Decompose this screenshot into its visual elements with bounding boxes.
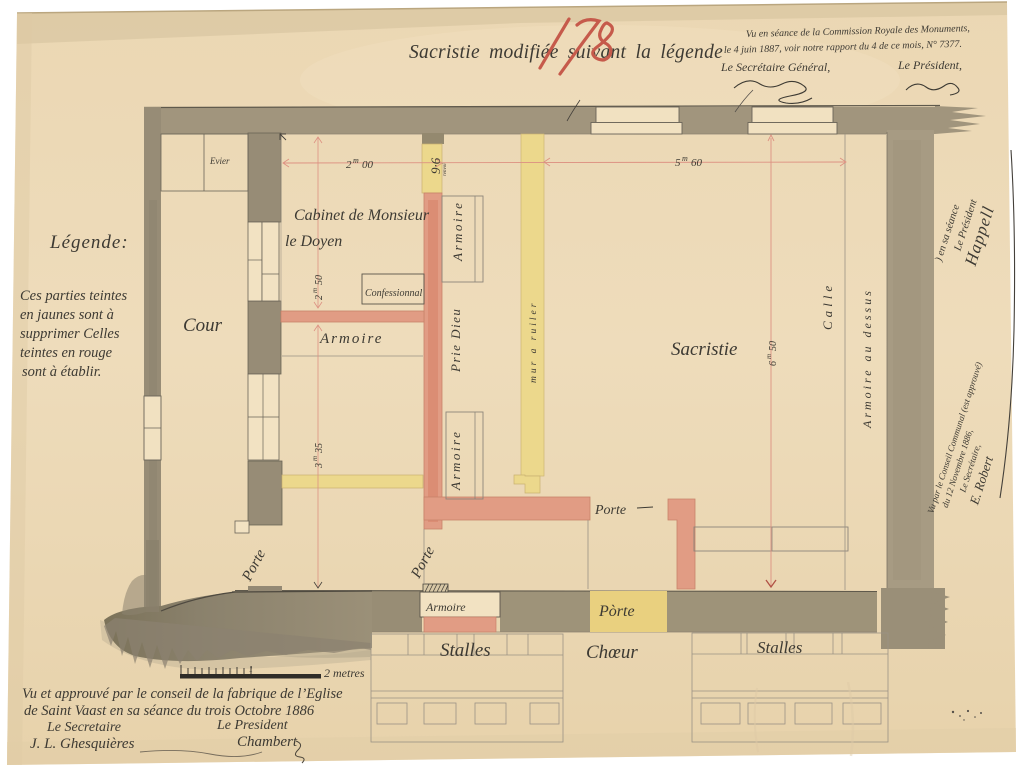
svg-text:50: 50 [768,341,779,351]
svg-text:m: m [311,456,319,461]
svg-text:Stalles: Stalles [757,638,803,657]
svg-text:Le Secrétaire Général,: Le Secrétaire Général, [720,60,830,74]
svg-text:Armoire au dessus: Armoire au dessus [860,288,874,429]
svg-text:Stalles: Stalles [440,640,491,661]
svg-text:m: m [765,354,773,359]
svg-text:9·6: 9·6 [428,157,443,174]
svg-text:m: m [353,156,359,165]
svg-text:m: m [682,154,688,163]
svg-text:Le Secretaire: Le Secretaire [46,720,121,735]
svg-text:m: m [311,288,319,293]
svg-text:Chœur: Chœur [586,642,638,663]
svg-text:Chambert: Chambert [237,734,298,750]
svg-text:5: 5 [675,157,681,169]
svg-text:Le President: Le President [216,718,289,733]
svg-text:Sacristie modifiée suivant la: Sacristie modifiée suivant la légende [409,42,723,63]
svg-text:teintes en rouge: teintes en rouge [20,345,113,361]
svg-text:1: 1 [249,665,253,674]
svg-text:Armoire: Armoire [448,430,463,491]
svg-text:Calle: Calle [820,282,835,330]
svg-text:J. L. Ghesquières: J. L. Ghesquières [30,736,135,752]
svg-text:Porte: Porte [594,503,626,518]
svg-text:mur a ruiler: mur a ruiler [529,301,539,383]
svg-text:00: 00 [362,159,374,171]
svg-text:35: 35 [314,443,325,454]
svg-text:Evier: Evier [209,156,230,166]
svg-text:Vu et approuvé par le conseil: Vu et approuvé par le conseil de la fabr… [22,686,343,702]
svg-text:Pòrte: Pòrte [598,603,635,620]
svg-text:Armoire: Armoire [319,331,383,347]
svg-text:Légende:: Légende: [49,232,129,253]
svg-text:Ces parties teintes: Ces parties teintes [20,288,127,304]
svg-text:Armoire: Armoire [450,201,465,262]
svg-text:renvoi: renvoi [443,163,448,176]
svg-text:Prie Dieu: Prie Dieu [448,308,463,373]
svg-text:Sacristie: Sacristie [671,339,738,360]
svg-text:Cabinet de Monsieur: Cabinet de Monsieur [294,207,430,224]
svg-text:50: 50 [314,275,325,285]
svg-text:le Doyen: le Doyen [285,233,342,250]
svg-text:2: 2 [346,159,352,171]
svg-text:6: 6 [768,361,779,366]
svg-text:supprimer Celles: supprimer Celles [20,326,120,342]
svg-text:Armoire: Armoire [425,600,466,614]
svg-text:2 metres: 2 metres [324,666,365,680]
svg-text:60: 60 [691,157,703,169]
svg-text:Confessionnal: Confessionnal [365,288,422,299]
svg-text:en jaunes sont à: en jaunes sont à [20,307,114,323]
svg-text:3: 3 [314,463,325,469]
svg-text:Le Président,: Le Président, [897,58,962,72]
svg-text:Cour: Cour [183,315,223,336]
svg-text:sont à établir.: sont à établir. [22,364,101,380]
svg-text:de Saint Vaast en sa séance du: de Saint Vaast en sa séance du trois Oct… [24,703,315,719]
svg-text:2: 2 [314,295,325,300]
